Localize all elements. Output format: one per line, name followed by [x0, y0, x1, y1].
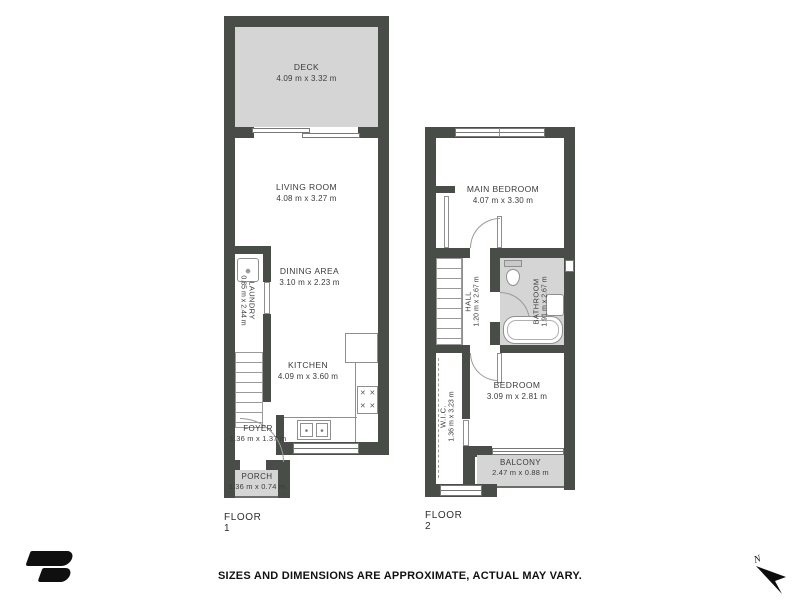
window — [293, 443, 359, 454]
room-name: LIVING ROOM — [235, 182, 378, 192]
window — [440, 485, 482, 496]
sliding-door — [492, 448, 564, 455]
disclaimer-text: SIZES AND DIMENSIONS ARE APPROXIMATE, AC… — [0, 570, 800, 582]
room-label-porch: PORCH 1.36 m x 0.74 m — [213, 472, 301, 491]
room-label-balcony: BALCONY 2.47 m x 0.88 m — [477, 458, 564, 477]
door-swing-arc — [470, 353, 498, 381]
window — [565, 260, 574, 272]
room-dims: 1.36 m x 1.37 m — [213, 434, 303, 443]
room-label-main-bedroom: MAIN BEDROOM 4.07 m x 3.30 m — [440, 184, 566, 205]
wall-segment — [224, 16, 389, 27]
room-name: DINING AREA — [252, 266, 367, 276]
north-arrow-icon — [756, 566, 786, 594]
room-label-living: LIVING ROOM 4.08 m x 3.27 m — [235, 182, 378, 203]
room-name: W.I.C. — [439, 391, 448, 441]
room-label-dining: DINING AREA 3.10 m x 2.23 m — [252, 266, 367, 287]
room-name: FOYER — [213, 424, 303, 433]
closet-door — [444, 196, 449, 248]
porch-step-edge — [235, 496, 278, 498]
wall-segment — [500, 345, 575, 353]
brand-logo — [26, 546, 86, 592]
wall-segment — [358, 127, 389, 138]
room-name: BALCONY — [477, 458, 564, 467]
room-name: BATHROOM — [532, 276, 541, 326]
compass-n-label: N — [752, 553, 764, 566]
wall-segment — [463, 457, 475, 484]
floor2-label: FLOOR 2 — [425, 510, 462, 532]
room-label-wic: W.I.C. 1.36 m x 3.23 m — [430, 362, 464, 470]
room-name: KITCHEN — [252, 360, 364, 370]
wall-segment — [564, 127, 575, 490]
counter-edge — [283, 417, 357, 418]
room-dims: 2.47 m x 0.88 m — [477, 468, 564, 477]
burner-icon: ✕ — [358, 387, 368, 400]
room-label-bedroom: BEDROOM 3.09 m x 2.81 m — [470, 380, 564, 401]
floor1-label: FLOOR 1 — [224, 512, 261, 534]
door-swing-arc — [470, 218, 500, 248]
wall-segment — [425, 345, 470, 353]
room-dims: 4.07 m x 3.30 m — [440, 196, 566, 205]
room-dims: 4.09 m x 3.32 m — [235, 74, 378, 83]
compass-north-arrow: N — [748, 550, 796, 596]
wall-segment — [263, 314, 271, 348]
burner-icon: ✕ — [358, 400, 368, 413]
room-name: PORCH — [213, 472, 301, 481]
sink-basin — [316, 423, 329, 437]
floorplan-canvas: DECK 4.09 m x 3.32 m LIVING ROOM 4.08 m … — [0, 0, 800, 600]
room-label-deck: DECK 4.09 m x 3.32 m — [235, 62, 378, 83]
room-label-bathroom: BATHROOM 1.91 m x 2.67 m — [520, 256, 560, 346]
room-name: MAIN BEDROOM — [440, 184, 566, 194]
room-name: BEDROOM — [470, 380, 564, 390]
room-dims: 3.10 m x 2.23 m — [252, 278, 367, 287]
wall-segment — [433, 186, 455, 193]
wall-segment — [224, 460, 240, 470]
burner-icon: ✕ — [368, 387, 378, 400]
room-label-kitchen: KITCHEN 4.09 m x 3.60 m — [252, 360, 364, 381]
room-name: DECK — [235, 62, 378, 72]
wall-segment — [490, 322, 500, 345]
room-dims: 3.09 m x 2.81 m — [470, 392, 564, 401]
wall-segment — [224, 127, 254, 138]
room-name: HALL — [464, 276, 473, 326]
room-dims: 1.20 m x 2.67 m — [474, 276, 481, 326]
logo-shape — [25, 551, 74, 566]
room-label-foyer: FOYER 1.36 m x 1.37 m — [213, 424, 303, 443]
window — [455, 128, 545, 137]
room-dims: 1.91 m x 2.67 m — [542, 276, 549, 326]
fridge — [345, 333, 378, 363]
sliding-door — [302, 133, 360, 138]
room-dims: 1.36 m x 3.23 m — [449, 391, 456, 441]
room-dims: 4.08 m x 3.27 m — [235, 194, 378, 203]
room-dims: 0.85 m x 2.44 m — [240, 275, 247, 325]
room-label-hall: HALL 1.20 m x 2.67 m — [452, 256, 492, 346]
room-dims: 4.09 m x 3.60 m — [252, 372, 364, 381]
room-dims: 1.36 m x 0.74 m — [213, 482, 301, 491]
stove: ✕✕✕✕ — [357, 386, 378, 414]
wall-segment — [378, 16, 389, 455]
wall-segment — [490, 248, 500, 292]
burner-icon: ✕ — [368, 400, 378, 413]
window-mullion — [499, 128, 500, 137]
